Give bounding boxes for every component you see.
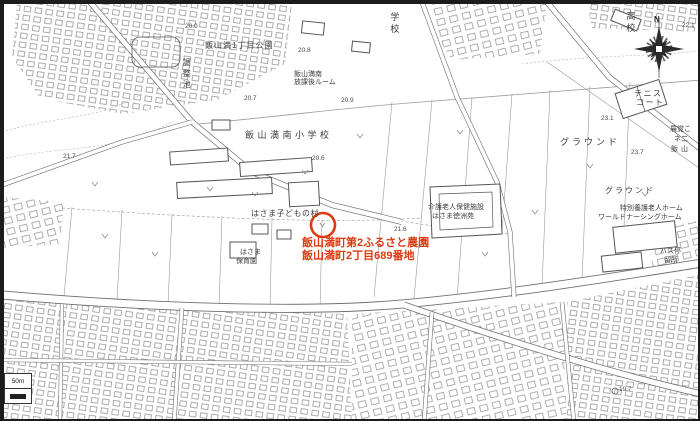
map-label: 放課後ルーム bbox=[294, 79, 336, 87]
map-label: 飯山満南小学校 bbox=[245, 130, 333, 140]
map-label: 介護老人保健施設 bbox=[428, 204, 484, 212]
target-annotation: 飯山満町第2ふるさと農園 飯山満町2丁目689番地 bbox=[302, 237, 429, 262]
map-label: 高校 bbox=[625, 11, 635, 35]
map-label: 調整池 bbox=[182, 58, 191, 91]
map-label: テニス bbox=[634, 89, 663, 98]
scale-label: 50m bbox=[5, 374, 31, 388]
annotation-line2: 飯山満町2丁目689番地 bbox=[302, 250, 429, 263]
elevation-label: 20.7 bbox=[244, 95, 257, 102]
elevation-label: 22.1 bbox=[682, 22, 695, 29]
scale-legend: 50m bbox=[4, 373, 32, 404]
label-layer: 学校飯山満1丁目公園調整池飯山満南放課後ルーム飯山満南小学校はさま子どもの村はさ… bbox=[2, 2, 698, 419]
map-label: ネ二 bbox=[674, 136, 688, 144]
elevation-label: 21.6 bbox=[394, 226, 407, 233]
map-label: グラウンド bbox=[560, 137, 620, 147]
elevation-label: 23.7 bbox=[631, 149, 644, 156]
map-label: はさま子どもの村 bbox=[251, 209, 319, 218]
map-label: グラウンド bbox=[605, 186, 655, 195]
map-label: 特別養護老人ホーム bbox=[620, 205, 683, 213]
map-label: 展覚こ bbox=[670, 126, 691, 134]
map-label: バス停 bbox=[660, 248, 681, 256]
compass-north-label: N bbox=[654, 15, 660, 24]
cadastral-map: 学校飯山満1丁目公園調整池飯山満南放課後ルーム飯山満南小学校はさま子どもの村はさ… bbox=[0, 0, 700, 421]
map-label: 飯山満1丁目公園 bbox=[205, 41, 273, 50]
map-label: 飯山満南 bbox=[294, 71, 322, 79]
map-label: はさま徳洲苑 bbox=[432, 213, 474, 221]
map-label: ワールドナーシングホーム bbox=[598, 214, 682, 222]
elevation-label: 20.0 bbox=[185, 23, 198, 30]
map-label: 学校 bbox=[389, 12, 399, 36]
elevation-label: 19.7 bbox=[619, 386, 632, 393]
elevation-label: 20.8 bbox=[298, 47, 311, 54]
elevation-label: 21.7 bbox=[63, 153, 76, 160]
map-label: はさま bbox=[240, 249, 261, 257]
elevation-label: 20.9 bbox=[341, 97, 354, 104]
map-label: 保育園 bbox=[236, 258, 257, 266]
map-label: 留所 bbox=[664, 257, 678, 265]
map-label: コート bbox=[636, 98, 665, 107]
elevation-label: 23.1 bbox=[601, 115, 614, 122]
annotation-line1: 飯山満町第2ふるさと農園 bbox=[302, 237, 429, 250]
elevation-label: 20.6 bbox=[312, 155, 325, 162]
map-label: 飯山 bbox=[671, 146, 691, 154]
scale-bar bbox=[5, 388, 31, 403]
